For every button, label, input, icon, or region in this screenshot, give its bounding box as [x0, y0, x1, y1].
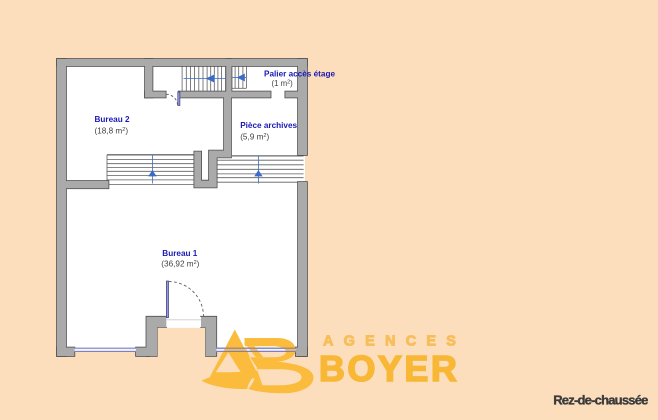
- svg-text:Bureau 2: Bureau 2: [95, 115, 130, 124]
- svg-text:BOYER: BOYER: [319, 348, 460, 389]
- svg-text:Palier accès étage: Palier accès étage: [264, 69, 335, 78]
- svg-text:Pièce archives: Pièce archives: [240, 121, 297, 130]
- svg-text:Rez-de-chaussée: Rez-de-chaussée: [553, 392, 648, 407]
- svg-text:AGENCES: AGENCES: [323, 333, 466, 349]
- svg-text:Bureau 1: Bureau 1: [162, 249, 197, 258]
- svg-text:(1 m2): (1 m2): [272, 79, 294, 88]
